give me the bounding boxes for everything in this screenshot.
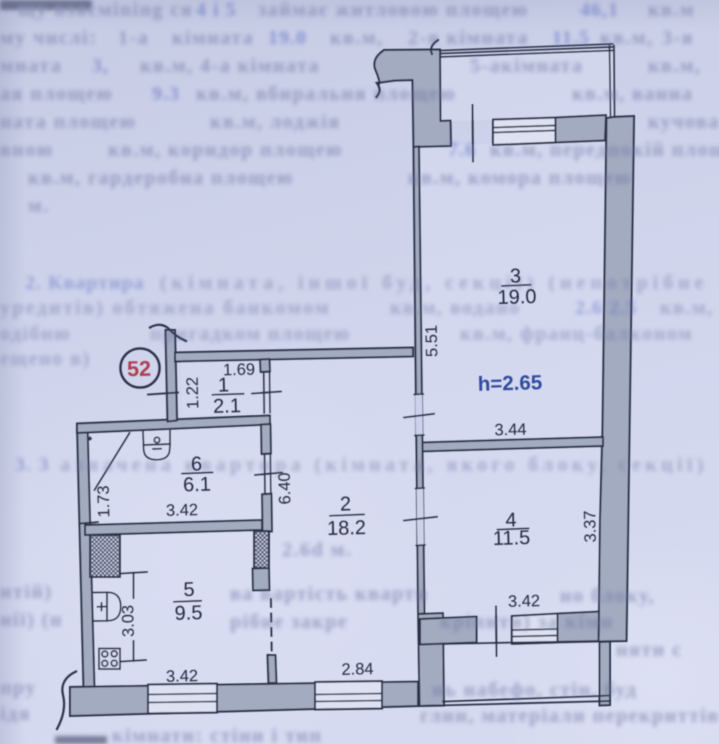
svg-text:ещено в): ещено в) <box>0 348 91 370</box>
svg-text:6.40: 6.40 <box>276 472 295 505</box>
svg-text:пру: пру <box>0 677 37 699</box>
svg-text:кв.м,: кв.м, <box>600 27 653 49</box>
svg-text:h=2.65: h=2.65 <box>477 371 542 396</box>
svg-text:кв.м, лоджія: кв.м, лоджія <box>210 111 341 133</box>
svg-text:6: 6 <box>191 453 203 475</box>
svg-text:2.6d м.: 2.6d м. <box>282 539 352 561</box>
svg-text:4 і 5: 4 і 5 <box>196 0 237 21</box>
svg-text:кучова: кучова <box>648 111 719 133</box>
svg-text:мната: мната <box>0 55 62 77</box>
svg-text:кв.м, ванна: кв.м, ванна <box>572 83 693 105</box>
svg-text:9.5: 9.5 <box>174 602 202 625</box>
svg-text:11.5: 11.5 <box>552 27 590 49</box>
svg-text:кімнати: стіни і тип: кімнати: стіни і тип <box>112 725 322 744</box>
svg-text:2-я кімната: 2-я кімната <box>408 27 529 49</box>
svg-text:3.42: 3.42 <box>166 667 199 686</box>
svg-text:но блоку,: но блоку, <box>560 585 655 607</box>
svg-text:6.1: 6.1 <box>183 474 211 497</box>
svg-text:3.42: 3.42 <box>508 592 541 611</box>
svg-text:нь набефо, стін, буд: нь набефо, стін, буд <box>432 679 637 701</box>
svg-text:3-я: 3-я <box>662 27 694 49</box>
svg-text:кімната: кімната <box>172 27 254 49</box>
svg-text:ва вартість кварти: ва вартість кварти <box>230 583 429 605</box>
svg-text:5: 5 <box>183 579 195 601</box>
svg-text:1.22: 1.22 <box>184 377 203 410</box>
svg-text:кв.м: кв.м <box>648 0 695 21</box>
svg-text:пригадком площею: пригадком площею <box>150 323 351 345</box>
svg-text:5-акімната: 5-акімната <box>470 55 583 77</box>
svg-text:кв.м, 4-а кімната: кв.м, 4-а кімната <box>140 55 320 77</box>
svg-text:вною: вною <box>0 139 54 161</box>
svg-text:1: 1 <box>218 374 230 396</box>
svg-text:кв.м,: кв.м, <box>660 297 713 319</box>
svg-text:кв.м, коридор площею: кв.м, коридор площею <box>108 139 343 161</box>
svg-text:11.5: 11.5 <box>493 527 531 550</box>
svg-text:3,: 3, <box>92 55 109 77</box>
svg-text:19.0: 19.0 <box>497 286 537 309</box>
svg-text:нії) (н: нії) (н <box>0 609 63 631</box>
svg-text:3.03: 3.03 <box>119 605 138 638</box>
svg-text:1-а: 1-а <box>118 27 149 49</box>
svg-text:5.51: 5.51 <box>423 325 442 358</box>
svg-text:52: 52 <box>127 357 152 382</box>
svg-text:нтій): нтій) <box>0 581 53 603</box>
svg-text:3.42: 3.42 <box>166 501 199 520</box>
svg-text:7.6: 7.6 <box>448 139 476 161</box>
svg-text:кв.м,: кв.м, <box>648 55 701 77</box>
svg-text:3: 3 <box>510 265 522 287</box>
svg-text:ая площею: ая площею <box>0 83 113 105</box>
svg-text:2: 2 <box>340 493 352 515</box>
svg-text:3. З: 3. З <box>15 454 50 476</box>
svg-text:уредитів) обтяжена банкомом: уредитів) обтяжена банкомом <box>0 297 330 319</box>
svg-text:одібню: одібню <box>0 323 71 345</box>
svg-text:му числі:: му числі: <box>0 27 97 49</box>
svg-text:щу взаємining ся: щу взаємining ся <box>18 0 193 21</box>
svg-text:кв.м, комора площею: кв.м, комора площею <box>408 167 632 189</box>
svg-text:ната площею: ната площею <box>0 111 136 133</box>
svg-text:рібне закре: рібне закре <box>230 611 348 633</box>
svg-text:1.73: 1.73 <box>95 485 114 518</box>
svg-text:18.2: 18.2 <box>327 517 367 540</box>
svg-text:глин, матеріали перекриттів: глин, матеріали перекриттів <box>420 705 719 727</box>
svg-text:кв.м, франц-балконом: кв.м, франц-балконом <box>460 323 693 345</box>
svg-text:кріпити) за кімн: кріпити) за кімн <box>440 611 614 633</box>
svg-text:м.: м. <box>28 195 50 217</box>
svg-text:ідя: ідя <box>0 703 31 725</box>
svg-text:кв.м, гардеробна площею: кв.м, гардеробна площею <box>28 167 294 189</box>
svg-text:2.84: 2.84 <box>341 660 374 679</box>
svg-text:46,1: 46,1 <box>580 0 619 21</box>
svg-text:19.0: 19.0 <box>268 27 307 49</box>
svg-text:няти с: няти с <box>616 639 683 661</box>
svg-text:займає житловою площею: займає житловою площею <box>258 0 529 21</box>
svg-text:2.1: 2.1 <box>213 395 241 418</box>
svg-text:кв.м, вбиральня площею: кв.м, вбиральня площею <box>196 83 456 105</box>
svg-text:3.37: 3.37 <box>581 510 600 543</box>
svg-text:2.6 2.5: 2.6 2.5 <box>575 297 637 319</box>
svg-text:9.3: 9.3 <box>152 83 180 105</box>
svg-text:3.44: 3.44 <box>494 421 527 440</box>
svg-text:кв.м, передпокій площею: кв.м, передпокій площею <box>490 139 719 161</box>
svg-text:кв.м,: кв.м, <box>330 27 383 49</box>
svg-text:2. Квартира: 2. Квартира <box>25 272 145 294</box>
